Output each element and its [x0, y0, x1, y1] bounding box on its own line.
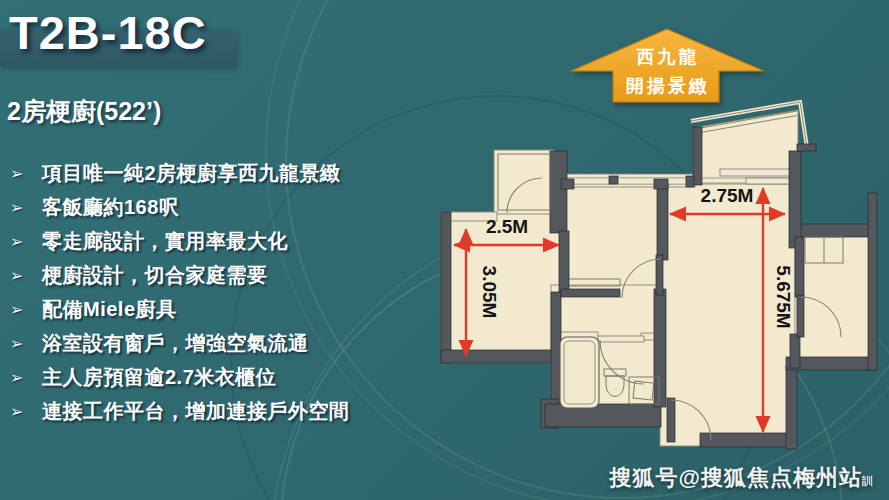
- room-floors: [441, 110, 875, 446]
- watermark: 搜狐号@搜狐焦点梅州站訓: [610, 463, 874, 493]
- sink-icon: [629, 377, 659, 404]
- bullet-arrow-icon: ➢: [10, 334, 42, 353]
- feature-list: ➢項目唯一純2房梗廚享西九龍景緻 ➢客飯廳約168呎 ➢零走廊設計，實用率最大化…: [10, 156, 350, 428]
- work-platform-inner: [498, 154, 550, 210]
- master-door-arc: [801, 297, 841, 337]
- bathroom-door-leaf: [598, 336, 644, 342]
- bedroom2-room: [563, 176, 669, 291]
- decorative-circle: [285, 0, 889, 499]
- feature-text: 項目唯一純2房梗廚享西九龍景緻: [42, 160, 341, 187]
- bullet-arrow-icon: ➢: [10, 402, 42, 421]
- feature-item: ➢連接工作平台，增加連接戶外空間: [10, 394, 350, 428]
- feature-text: 連接工作平台，增加連接戶外空間: [42, 398, 350, 425]
- window-sill: [746, 178, 792, 184]
- dimension-living-depth: 5.675M: [773, 265, 794, 328]
- entrance-door-leaf: [667, 398, 675, 442]
- toilet-icon: [604, 369, 626, 376]
- entrance-door-arc: [671, 400, 711, 440]
- master-door-leaf: [797, 295, 804, 337]
- dimension-kitchen-width: 2.5M: [486, 216, 528, 237]
- feature-text: 客飯廳約168呎: [42, 194, 179, 221]
- watermark-text: 搜狐号@搜狐焦点梅州站: [610, 465, 862, 490]
- column: [550, 151, 567, 233]
- feature-item: ➢配備Miele廚具: [10, 292, 350, 326]
- bathroom-fixtures: [560, 337, 659, 408]
- wardrobe-icon: [805, 237, 843, 263]
- watermark-suffix: 訓: [862, 475, 874, 487]
- feature-item: ➢客飯廳約168呎: [10, 190, 350, 224]
- bathtub-icon: [560, 337, 599, 408]
- living-dining-room: [660, 183, 796, 446]
- bathroom-door-arc: [600, 340, 644, 384]
- dimension-living-width: 2.75M: [701, 185, 754, 206]
- slide: 西九龍 開揚景緻: [0, 0, 889, 500]
- feature-text: 梗廚設計，切合家庭需要: [42, 262, 268, 289]
- windows: [441, 111, 797, 418]
- master-bedroom-room: [795, 226, 875, 369]
- balcony-rail: [691, 102, 807, 147]
- master-bedroom-fixtures: [805, 237, 843, 263]
- feature-item: ➢項目唯一純2房梗廚享西九龍景緻: [10, 156, 350, 190]
- work-platform: [494, 150, 554, 214]
- feature-item: ➢梗廚設計，切合家庭需要: [10, 258, 350, 292]
- feature-text: 零走廊設計，實用率最大化: [42, 228, 288, 255]
- bullet-arrow-icon: ➢: [10, 300, 42, 319]
- walls: [441, 127, 877, 449]
- platform-door-arc: [507, 178, 542, 213]
- dimension-kitchen-depth: 3.05M: [479, 266, 500, 319]
- kitchen-room: [441, 212, 565, 363]
- window-sill: [720, 169, 790, 176]
- bedroom2-door-leaf: [656, 255, 663, 295]
- feature-text: 配備Miele廚具: [42, 296, 177, 323]
- bathroom-lobby: [551, 285, 667, 426]
- bay-window-area: [693, 110, 798, 184]
- view-arrow-line2: 開揚景緻: [626, 76, 710, 96]
- feature-text: 浴室設有窗戶，增強空氣流通: [42, 330, 309, 357]
- floor-plan: 2.5M 3.05M 2.75M 5.675M: [441, 102, 877, 449]
- feature-item: ➢主人房預留逾2.7米衣櫃位: [10, 360, 350, 394]
- bullet-arrow-icon: ➢: [10, 198, 42, 217]
- up-arrow-icon: [571, 29, 764, 102]
- bullet-arrow-icon: ➢: [10, 232, 42, 251]
- decorative-circle: [270, 210, 889, 500]
- bullet-arrow-icon: ➢: [10, 368, 42, 387]
- bedroom2-door-arc: [622, 259, 661, 298]
- decorative-circle: [280, 245, 844, 500]
- feature-item: ➢浴室設有窗戶，增強空氣流通: [10, 326, 350, 360]
- bullet-arrow-icon: ➢: [10, 266, 42, 285]
- view-arrow-line1: 西九龍: [636, 47, 700, 67]
- feature-item: ➢零走廊設計，實用率最大化: [10, 224, 350, 258]
- bullet-arrow-icon: ➢: [10, 164, 42, 183]
- door-swings: [507, 178, 841, 440]
- bathroom-window: [559, 411, 645, 418]
- unit-subtitle: 2房梗廚(522’): [7, 95, 161, 128]
- dimensions: 2.5M 3.05M 2.75M 5.675M: [454, 185, 794, 432]
- decorative-circle: [265, 0, 889, 500]
- page-title: T2B-18C: [9, 5, 207, 60]
- view-direction-arrow: 西九龍 開揚景緻: [571, 29, 764, 102]
- feature-text: 主人房預留逾2.7米衣櫃位: [42, 364, 276, 391]
